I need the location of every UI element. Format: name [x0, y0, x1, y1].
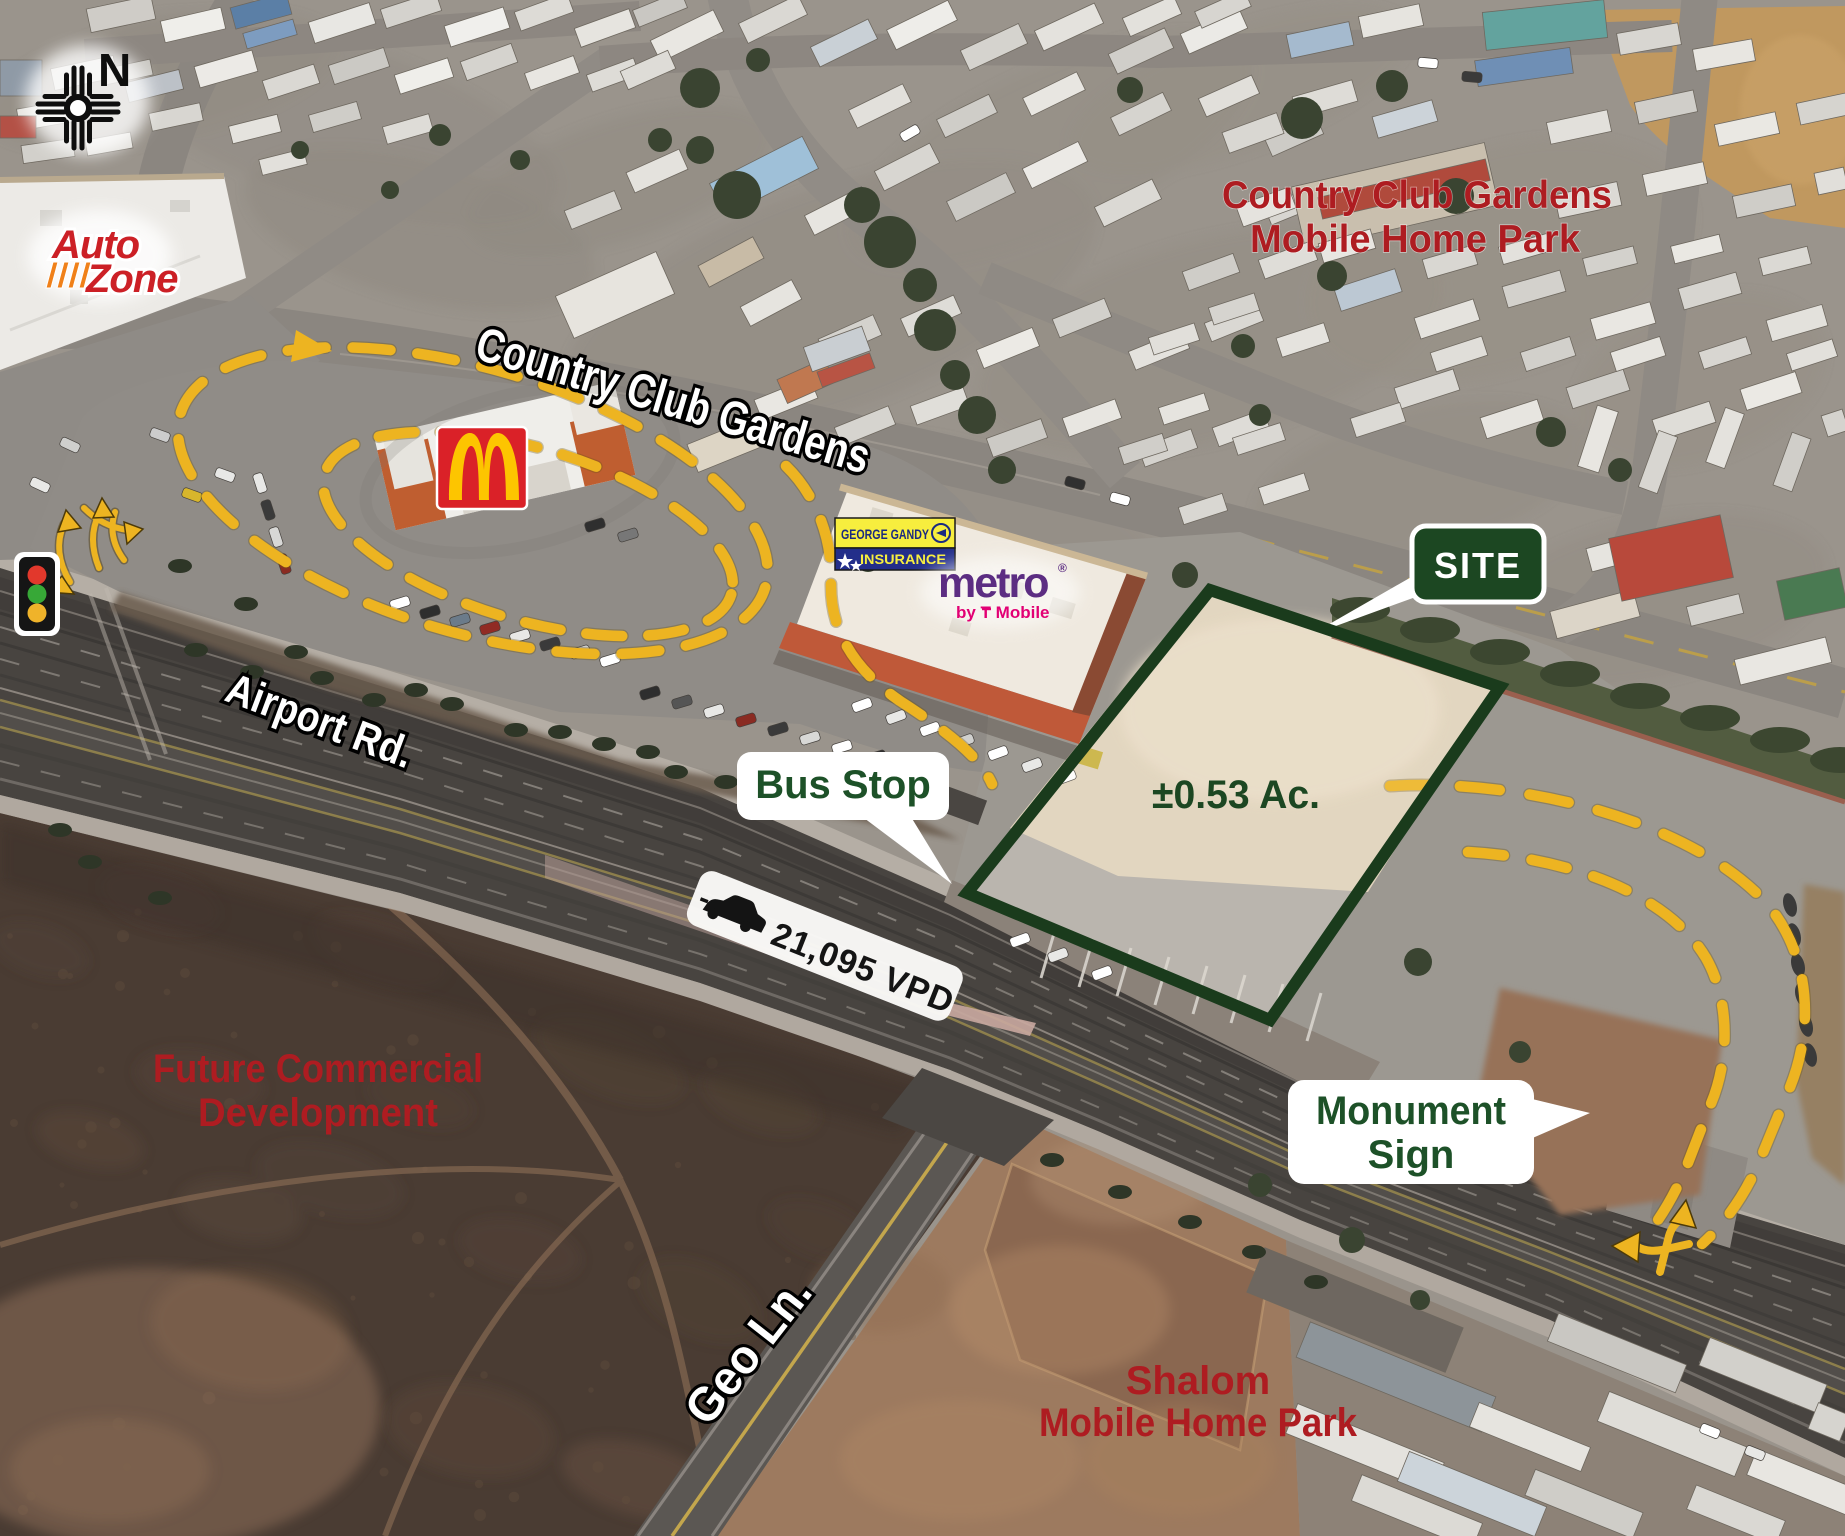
svg-text:metro: metro — [938, 559, 1048, 607]
svg-text:Country Club Gardens: Country Club Gardens — [1222, 174, 1612, 217]
svg-text:Zone: Zone — [85, 257, 178, 301]
svg-text:GEORGE GANDY: GEORGE GANDY — [841, 526, 930, 542]
svg-text:INSURANCE: INSURANCE — [860, 551, 946, 567]
svg-text:Monument: Monument — [1316, 1089, 1506, 1133]
svg-text:SITE: SITE — [1434, 545, 1522, 586]
svg-text:Development: Development — [198, 1091, 438, 1135]
svg-text:Mobile Home Park: Mobile Home Park — [1039, 1401, 1358, 1445]
svg-text:N: N — [98, 44, 131, 96]
svg-text:by T Mobile: by T Mobile — [956, 603, 1050, 622]
svg-text:Shalom: Shalom — [1126, 1359, 1270, 1403]
svg-text:®: ® — [1058, 561, 1067, 575]
svg-text:±0.53 Ac.: ±0.53 Ac. — [1152, 773, 1320, 817]
svg-text:Bus Stop: Bus Stop — [755, 763, 931, 807]
svg-text:Mobile Home Park: Mobile Home Park — [1250, 218, 1580, 261]
svg-text:Sign: Sign — [1368, 1133, 1455, 1177]
svg-text:Future Commercial: Future Commercial — [153, 1047, 483, 1091]
